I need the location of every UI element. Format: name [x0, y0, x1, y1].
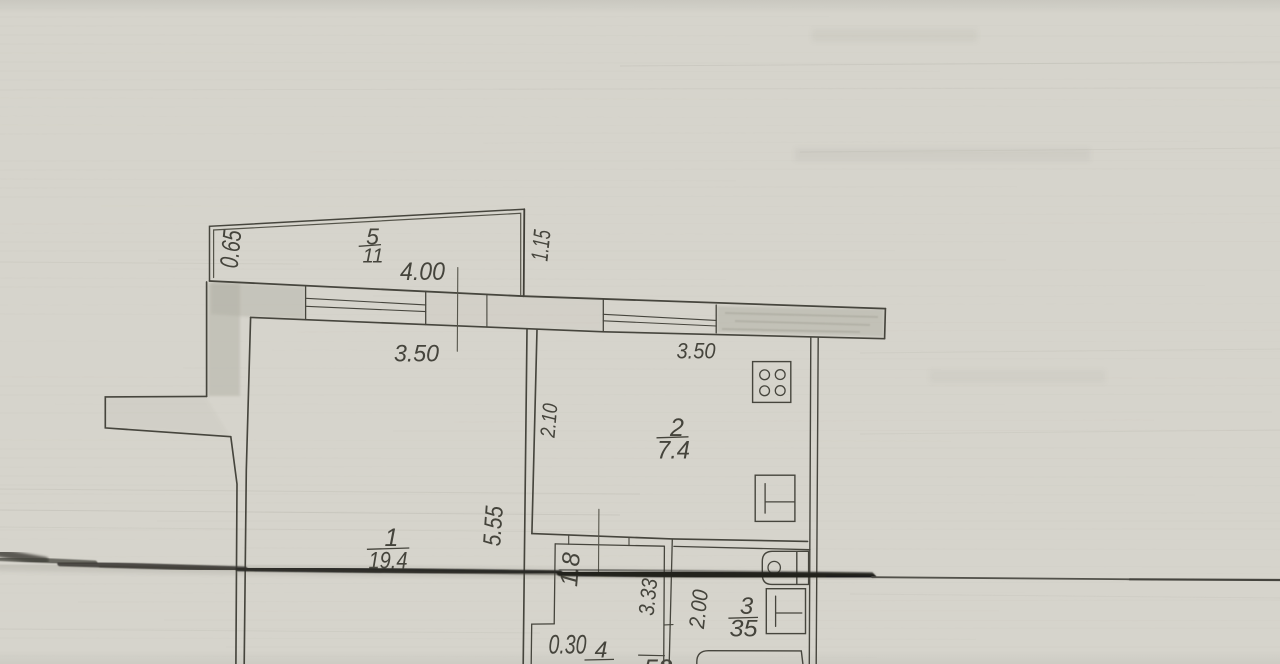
svg-text:4.00: 4.00: [400, 258, 445, 286]
svg-text:3.50: 3.50: [394, 341, 440, 368]
svg-text:3.50: 3.50: [677, 339, 717, 364]
svg-text:2.10: 2.10: [536, 402, 562, 439]
svg-text:3.33: 3.33: [634, 577, 663, 617]
svg-text:7.4: 7.4: [657, 437, 690, 465]
svg-text:1.15: 1.15: [526, 228, 556, 262]
svg-text:0.65: 0.65: [214, 228, 248, 269]
svg-text:2.00: 2.00: [684, 588, 713, 631]
svg-text:52: 52: [644, 654, 673, 664]
svg-text:0.30: 0.30: [549, 630, 587, 660]
svg-text:35: 35: [730, 616, 759, 643]
svg-text:4: 4: [595, 637, 608, 663]
svg-text:11: 11: [363, 246, 384, 268]
svg-text:5.55: 5.55: [478, 505, 509, 547]
